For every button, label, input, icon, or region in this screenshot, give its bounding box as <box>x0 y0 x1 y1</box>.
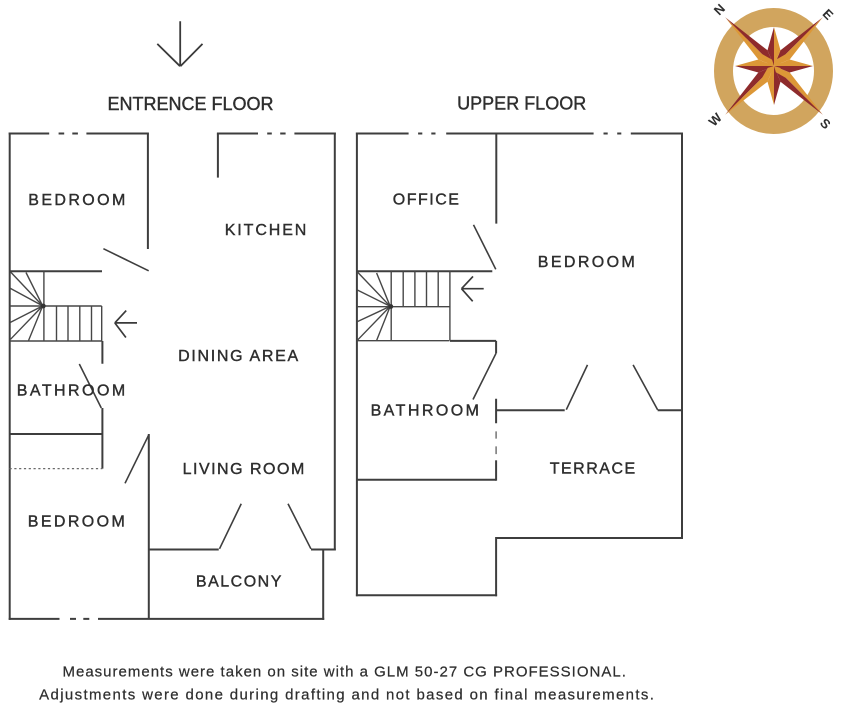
svg-text:S: S <box>817 115 834 132</box>
svg-text:KITCHEN: KITCHEN <box>225 222 309 239</box>
svg-text:DINING AREA: DINING AREA <box>178 348 300 365</box>
svg-text:BEDROOM: BEDROOM <box>28 192 127 209</box>
svg-text:Measurements were taken on sit: Measurements were taken on site with a G… <box>63 664 627 681</box>
svg-text:W: W <box>705 109 725 129</box>
svg-text:N: N <box>711 1 728 18</box>
svg-text:OFFICE: OFFICE <box>393 192 461 209</box>
svg-text:BATHROOM: BATHROOM <box>371 403 482 420</box>
svg-text:BEDROOM: BEDROOM <box>538 254 637 271</box>
svg-text:ENTRENCE FLOOR: ENTRENCE FLOOR <box>107 94 273 114</box>
svg-text:LIVING ROOM: LIVING ROOM <box>183 461 306 478</box>
svg-text:E: E <box>820 6 837 23</box>
svg-text:TERRACE: TERRACE <box>550 461 637 478</box>
svg-text:BEDROOM: BEDROOM <box>28 514 127 531</box>
svg-text:BALCONY: BALCONY <box>196 574 283 591</box>
svg-text:UPPER FLOOR: UPPER FLOOR <box>457 94 586 114</box>
svg-text:BATHROOM: BATHROOM <box>17 383 128 400</box>
svg-text:Adjustments were done during d: Adjustments were done during drafting an… <box>39 686 655 703</box>
